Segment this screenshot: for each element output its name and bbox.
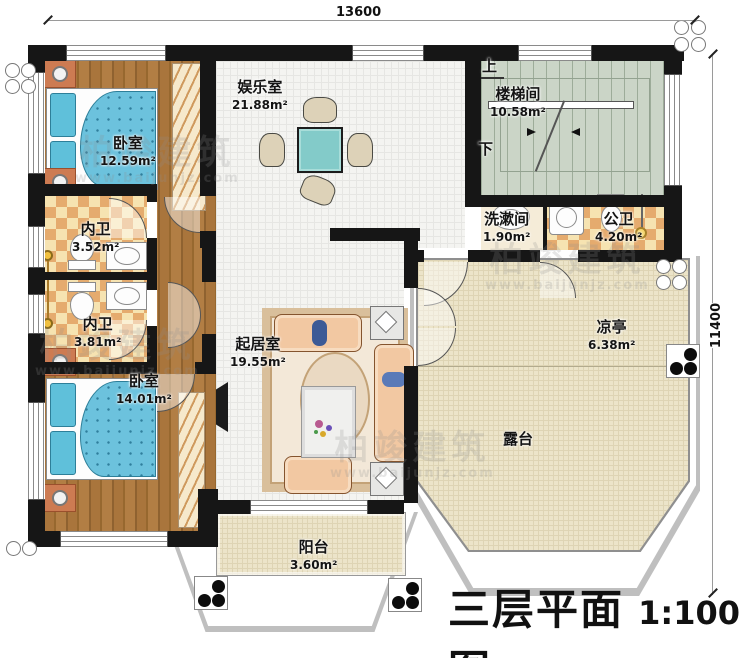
pillow bbox=[50, 383, 76, 427]
room-area: 3.81m² bbox=[74, 335, 121, 351]
pillow bbox=[50, 93, 76, 137]
room-label-bedroom2: 卧室 14.01m² bbox=[116, 372, 172, 407]
room-area: 4.20m² bbox=[595, 230, 642, 246]
toilet-tank bbox=[68, 282, 96, 292]
room-area: 12.59m² bbox=[100, 154, 156, 170]
window bbox=[518, 45, 592, 61]
window bbox=[28, 402, 45, 500]
washer-drum bbox=[556, 207, 577, 228]
dimension-tick bbox=[708, 49, 718, 59]
chair bbox=[303, 97, 337, 123]
chair bbox=[259, 133, 285, 167]
room-label-balcony: 阳台 3.60m² bbox=[290, 538, 337, 573]
stair-direction-arrow bbox=[571, 128, 580, 136]
door-opening bbox=[147, 290, 157, 326]
down-text: 下 bbox=[478, 140, 493, 160]
dimension-label-top: 13600 bbox=[332, 5, 385, 20]
tv bbox=[216, 382, 228, 432]
nightstand-lamp bbox=[52, 66, 68, 82]
room-label-washroom: 洗漱间 1.90m² bbox=[483, 210, 530, 245]
stair-direction-arrow bbox=[527, 128, 536, 136]
nightstand-lamp bbox=[52, 490, 68, 506]
wall bbox=[404, 366, 418, 503]
room-label-bedroom1: 卧室 12.59m² bbox=[100, 134, 156, 169]
room-label-publicbath: 公卫 4.20m² bbox=[595, 210, 642, 245]
pavilion-terrace-divider bbox=[418, 366, 688, 367]
corner-column bbox=[672, 259, 687, 274]
corner-column bbox=[21, 63, 36, 78]
wall bbox=[202, 248, 216, 282]
room-name: 起居室 bbox=[230, 335, 286, 355]
corner-column bbox=[21, 79, 36, 94]
column-marker bbox=[194, 576, 228, 610]
room-area: 1.90m² bbox=[483, 230, 530, 246]
wall bbox=[543, 195, 547, 250]
person-figure bbox=[312, 320, 327, 346]
nightstand bbox=[44, 60, 76, 88]
wall bbox=[200, 61, 216, 196]
room-area: 3.52m² bbox=[72, 240, 119, 256]
corner-column bbox=[691, 37, 706, 52]
person-figure bbox=[382, 372, 406, 387]
room-label-living: 起居室 19.55m² bbox=[230, 335, 286, 370]
room-name: 楼梯间 bbox=[490, 85, 546, 105]
stair-entry-line bbox=[479, 77, 504, 79]
coffee-table bbox=[301, 386, 356, 458]
sliding-window bbox=[250, 500, 368, 514]
corner-column bbox=[5, 63, 20, 78]
wall bbox=[200, 231, 216, 248]
corner-column bbox=[672, 275, 687, 290]
wall bbox=[465, 61, 481, 207]
wall bbox=[465, 195, 664, 207]
room-label-entertainment: 娱乐室 21.88m² bbox=[232, 78, 288, 113]
room-name: 公卫 bbox=[595, 210, 642, 230]
room-name: 洗漱间 bbox=[483, 210, 530, 230]
dimension-line-top bbox=[47, 20, 695, 21]
column-marker bbox=[666, 344, 700, 378]
wall bbox=[404, 241, 418, 288]
game-table bbox=[297, 127, 343, 173]
window bbox=[28, 294, 45, 334]
room-area: 3.60m² bbox=[290, 558, 337, 574]
room-name: 凉亭 bbox=[588, 318, 635, 338]
corner-column bbox=[6, 541, 21, 556]
room-area: 21.88m² bbox=[232, 98, 288, 114]
window bbox=[28, 226, 45, 268]
window bbox=[66, 45, 166, 61]
nightstand bbox=[44, 484, 76, 512]
corner-column bbox=[22, 541, 37, 556]
floor-plan: 柏竣建筑 www.baijunjz.com 柏竣建筑 www.baijunjz.… bbox=[0, 0, 750, 658]
room-name: 内卫 bbox=[72, 220, 119, 240]
wall bbox=[330, 228, 420, 241]
wall bbox=[45, 184, 147, 196]
sink bbox=[114, 287, 140, 305]
toilet-tank bbox=[68, 260, 96, 270]
room-name: 内卫 bbox=[74, 315, 121, 335]
wall bbox=[468, 250, 540, 262]
room-label-stairwell: 楼梯间 10.58m² bbox=[490, 85, 546, 120]
corner-column bbox=[674, 20, 689, 35]
room-label-pavilion: 凉亭 6.38m² bbox=[588, 318, 635, 353]
column-marker bbox=[388, 578, 422, 612]
riser-pipe bbox=[47, 256, 49, 322]
room-label-terrace: 露台 bbox=[503, 430, 533, 450]
armchair bbox=[284, 456, 352, 494]
wall bbox=[368, 500, 404, 514]
corner-column bbox=[656, 275, 671, 290]
room-name: 娱乐室 bbox=[232, 78, 288, 98]
pillow bbox=[50, 431, 76, 475]
plan-title: 三层平面图 bbox=[448, 576, 624, 658]
chair bbox=[347, 133, 373, 167]
wall bbox=[202, 334, 216, 362]
corner-column bbox=[656, 259, 671, 274]
room-label-bath2: 内卫 3.81m² bbox=[74, 315, 121, 350]
window bbox=[60, 531, 168, 547]
stair-up-label: 上 bbox=[482, 57, 497, 77]
room-name: 卧室 bbox=[116, 372, 172, 392]
room-area: 14.01m² bbox=[116, 392, 172, 408]
room-name: 卧室 bbox=[100, 134, 156, 154]
wall bbox=[195, 362, 216, 374]
room-label-bath1: 内卫 3.52m² bbox=[72, 220, 119, 255]
room-name: 露台 bbox=[503, 430, 533, 450]
window bbox=[352, 45, 424, 61]
room-area: 10.58m² bbox=[490, 105, 546, 121]
window bbox=[664, 74, 682, 186]
plan-scale: 1:100 bbox=[638, 594, 740, 632]
room-name: 阳台 bbox=[290, 538, 337, 558]
title-block: 三层平面图 1:100 本层建筑面积：118.43m² 层高：3.3m bbox=[448, 576, 740, 658]
room-area: 19.55m² bbox=[230, 355, 286, 371]
corner-column bbox=[5, 79, 20, 94]
up-text: 上 bbox=[482, 57, 497, 77]
flower-decor bbox=[315, 420, 323, 428]
pavilion-terrace-floor bbox=[418, 260, 688, 550]
wall bbox=[45, 272, 147, 280]
room-area: 6.38m² bbox=[588, 338, 635, 354]
corner-column bbox=[674, 37, 689, 52]
dimension-label-right: 11400 bbox=[709, 303, 724, 348]
door-opening bbox=[147, 202, 157, 238]
stair-down-label: 下 bbox=[478, 140, 493, 160]
